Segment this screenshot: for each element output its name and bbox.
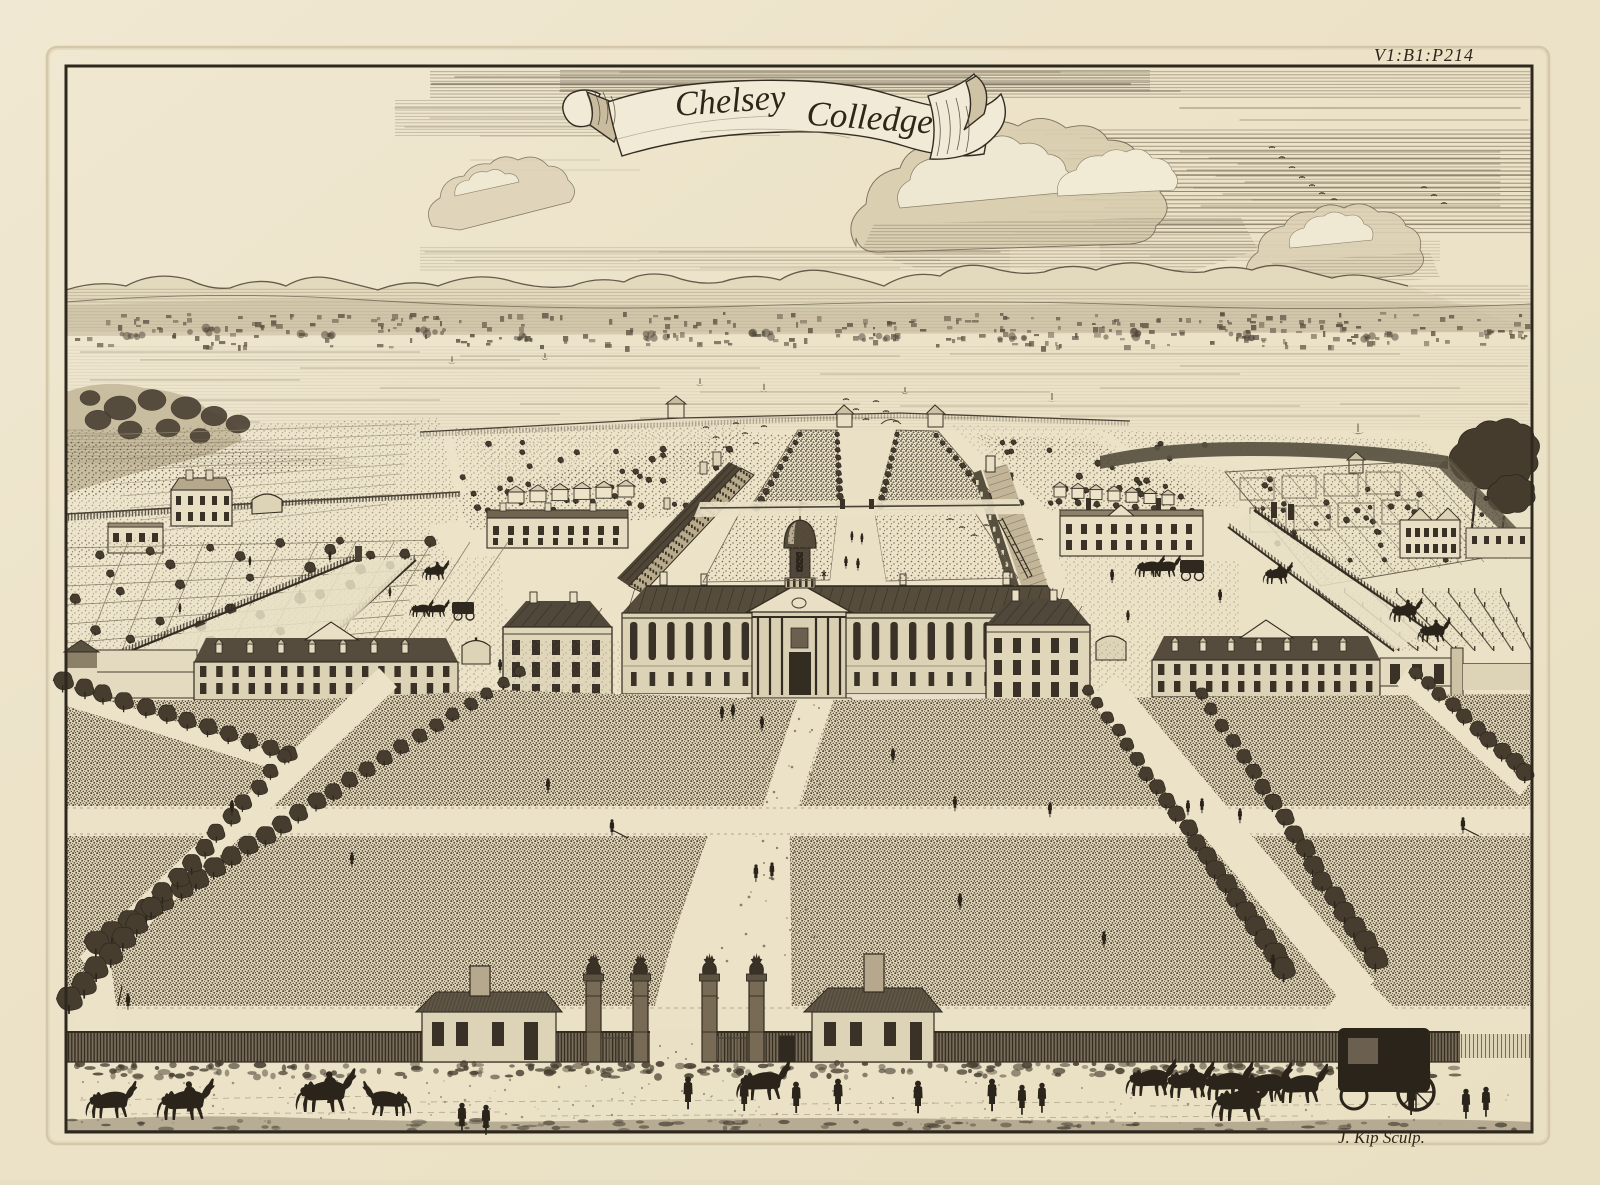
svg-text:Chelsey: Chelsey	[674, 77, 788, 124]
svg-text:V1:B1:P214: V1:B1:P214	[1374, 45, 1474, 65]
